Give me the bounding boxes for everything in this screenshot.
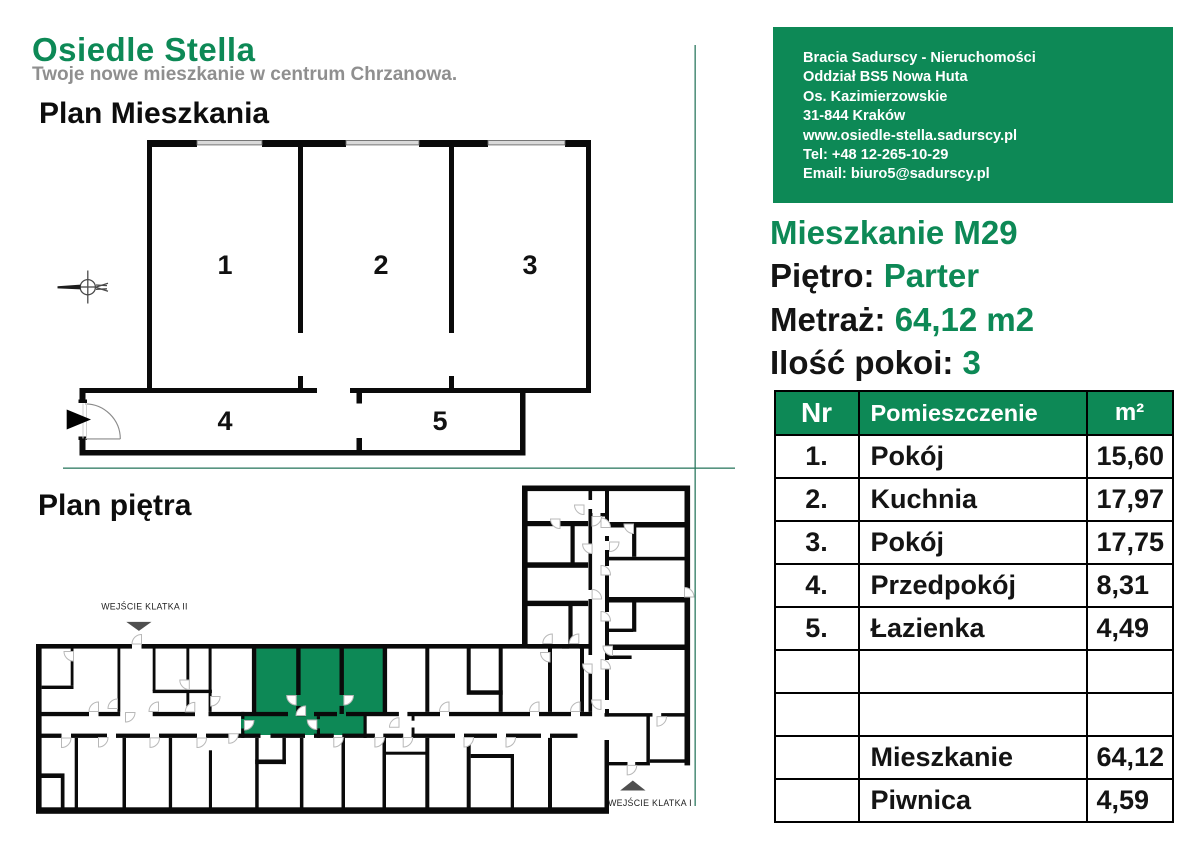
svg-text:WEJŚCIE KLATKA II: WEJŚCIE KLATKA II xyxy=(101,601,188,612)
svg-text:WEJŚCIE KLATKA I: WEJŚCIE KLATKA I xyxy=(608,797,692,808)
svg-text:5: 5 xyxy=(432,406,447,436)
svg-text:1: 1 xyxy=(217,250,232,280)
svg-text:2: 2 xyxy=(373,250,388,280)
svg-text:3: 3 xyxy=(522,250,537,280)
svg-text:4: 4 xyxy=(217,406,232,436)
